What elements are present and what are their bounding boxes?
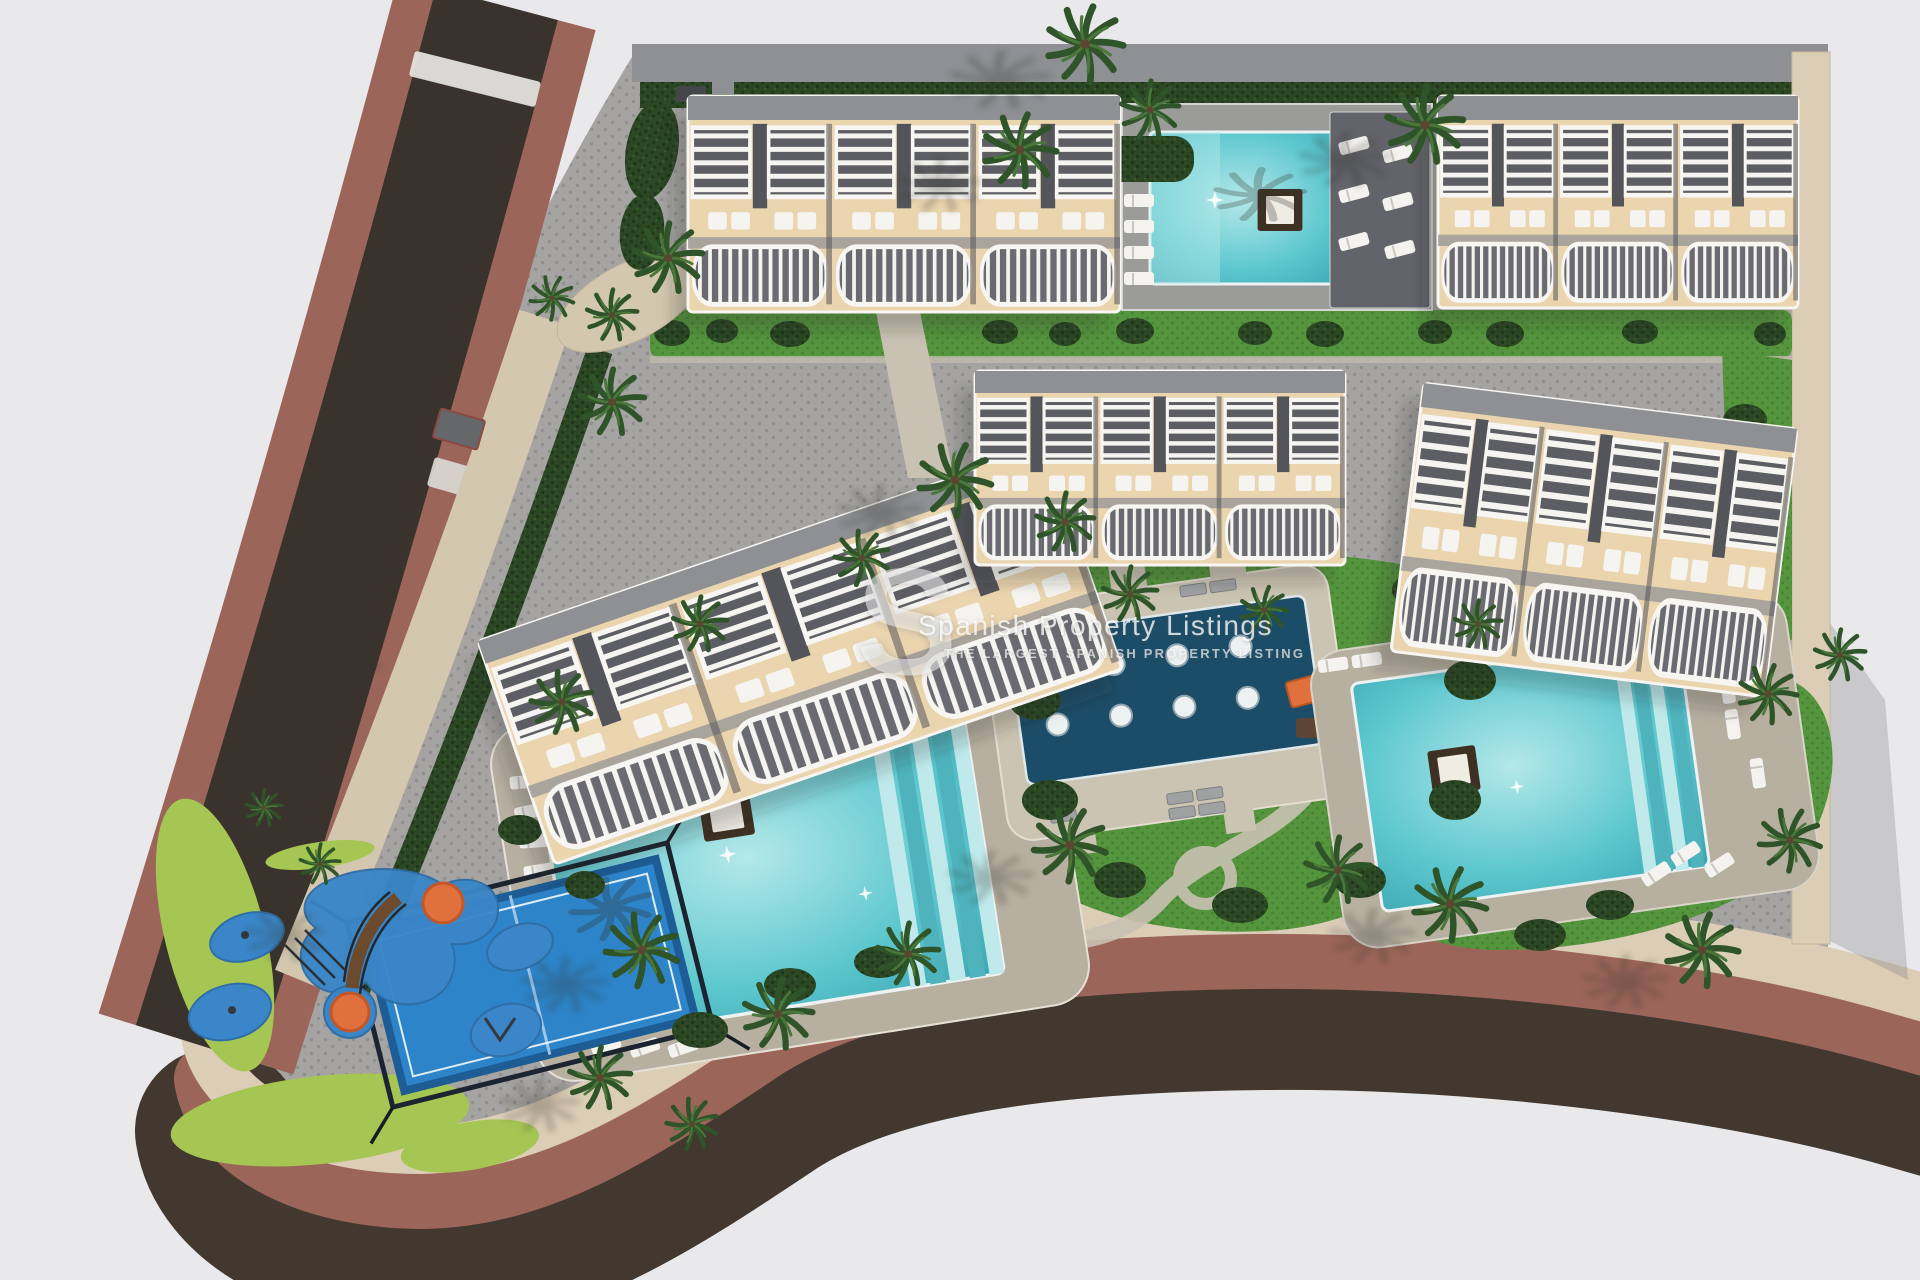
gate [712,82,734,94]
building-mid-east [1373,381,1797,715]
building-north-west [672,96,1120,330]
building-mid-center [959,371,1345,583]
building-north-east [1422,96,1798,326]
render-canvas [0,0,1920,1280]
site-plan-render: S Spanish Property Listings THE LARGEST … [0,0,1920,1280]
north-pool-area [1098,104,1432,310]
north-wall [632,44,1828,82]
